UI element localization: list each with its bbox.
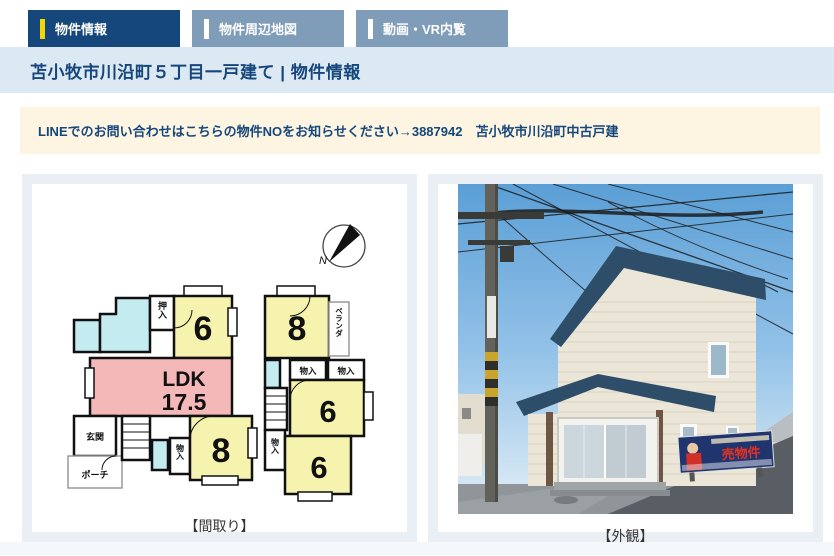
room-6-2f-a: 6	[319, 394, 336, 429]
tab-bar: 物件情報 物件周辺地図 動画・VR内覧	[28, 10, 834, 47]
ldk-size: 17.5	[162, 389, 207, 415]
storage-label-2f-b: 物入	[337, 366, 355, 376]
photo-caption: 【外観】	[598, 526, 654, 546]
closet-label: 押入	[157, 300, 168, 320]
line-notice-text: LINEでのお問い合わせはこちらの物件NOをお知らせください→3887942 苫…	[20, 121, 618, 140]
tab-accent-bar	[204, 19, 209, 39]
exterior-photo: 売物件	[458, 184, 793, 519]
entrance-label: 玄関	[86, 431, 104, 442]
sale-sign-text: 売物件	[721, 445, 761, 463]
compass-icon: N	[319, 224, 365, 267]
compass-n-label: N	[319, 255, 327, 267]
floorplan-caption: 【間取り】	[185, 516, 255, 536]
tab-label: 物件情報	[55, 19, 107, 38]
title-bar: 苫小牧市川沿町５丁目一戸建て | 物件情報	[0, 47, 834, 93]
tab-property-info[interactable]: 物件情報	[28, 10, 180, 47]
room-8-1f: 8	[212, 432, 231, 470]
tab-label: 物件周辺地図	[219, 19, 297, 38]
tab-video-vr[interactable]: 動画・VR内覧	[356, 10, 508, 47]
floorplan-panel: N	[22, 174, 417, 542]
entrance-doors	[558, 418, 658, 484]
tab-area-map[interactable]: 物件周辺地図	[192, 10, 344, 47]
floorplan-image: N	[32, 188, 407, 509]
content-panels: N	[22, 174, 823, 542]
tab-label: 動画・VR内覧	[383, 19, 466, 38]
tab-accent-bar	[368, 19, 373, 39]
storage-label-1f: 物入	[176, 443, 185, 461]
storage-label-2f-c: 物入	[271, 437, 280, 455]
ldk-label: LDK	[162, 368, 205, 391]
room-6-1f: 6	[194, 310, 213, 348]
line-notice-bar: LINEでのお問い合わせはこちらの物件NOをお知らせください→3887942 苫…	[20, 107, 820, 154]
storage-label-2f-a: 物入	[299, 366, 317, 376]
room-6-2f-b: 6	[310, 450, 327, 485]
photo-panel: 売物件	[428, 174, 823, 542]
room-8-2f: 8	[288, 310, 307, 348]
page-title: 苫小牧市川沿町５丁目一戸建て | 物件情報	[0, 58, 361, 83]
porch-label: ポーチ	[81, 469, 108, 480]
veranda-label: ベランダ	[334, 307, 343, 339]
tab-accent-bar	[40, 19, 45, 39]
page-footer-strip	[0, 542, 834, 555]
